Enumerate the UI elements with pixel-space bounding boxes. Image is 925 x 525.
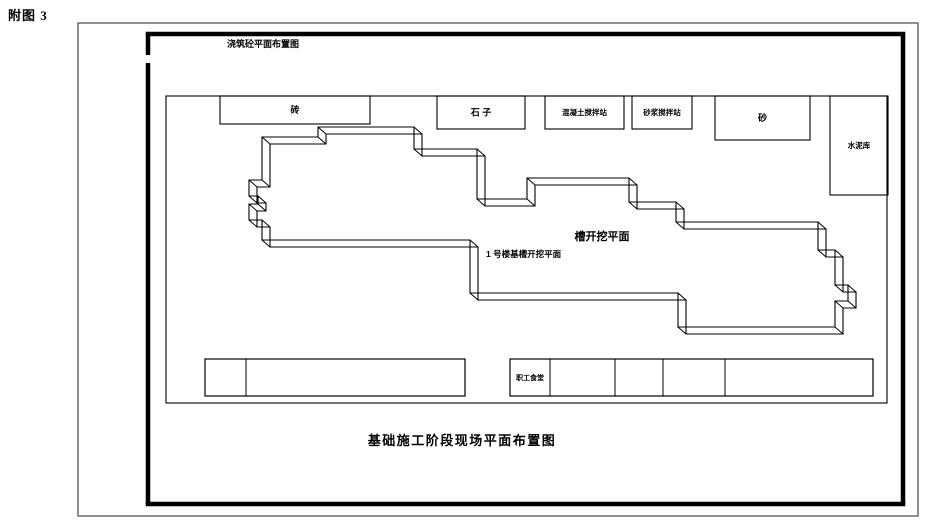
excavation-corner-tie [414,127,422,134]
bottom-shed-right-rect [510,359,873,396]
excavation-corner-tie [258,196,266,203]
excavation-corner-tie [835,301,843,308]
storage-box-label: 砖 [290,104,299,115]
excavation-corner-tie [262,137,270,144]
storage-box-label: 水泥库 [848,140,871,150]
excavation-corner-tie [249,196,257,203]
excavation-corner-tie [477,199,485,206]
construction-site-plan-page: 附图 3 浇筑砼平面布置图基础施工阶段现场平面布置图砖石 子混凝土搅拌站砂浆搅拌… [0,0,925,525]
excavation-corner-tie [262,220,270,227]
storage-box-label: 砂 [758,112,767,123]
storage-box-label: 石 子 [470,108,492,118]
drawing-caption: 基础施工阶段现场平面布置图 [367,433,557,448]
excavation-corner-tie [527,199,535,206]
excavation-corner-tie [835,250,843,257]
excavation-corner-tie [249,204,257,211]
excavation-corner-tie [414,149,422,156]
excavation-corner-tie [629,202,637,209]
excavation-corner-tie [477,149,485,156]
canteen-label: 职工食堂 [516,373,544,382]
excavation-corner-tie [818,222,826,229]
excavation-corner-tie [835,327,843,334]
top-area-label: 浇筑砼平面布置图 [227,38,299,49]
excavation-corner-tie [318,137,326,144]
excavation-corner-tie [470,293,478,300]
excavation-corner-tie [835,285,843,292]
excavation-corner-tie [470,240,478,247]
excavation-corner-tie [848,285,856,292]
excavation-corner-tie [527,178,535,185]
excavation-corner-tie [678,293,686,300]
storage-box-label: 砂浆搅拌站 [643,107,681,117]
excavation-corner-tie [848,301,856,308]
excavation-corner-tie [676,202,684,209]
excavation-label-main: 槽开挖平面 [575,229,630,243]
excavation-corner-tie [258,204,266,211]
excavation-corner-tie [318,127,326,134]
excavation-corner-tie [818,250,826,257]
excavation-corner-tie [678,327,686,334]
excavation-corner-tie [629,178,637,185]
excavation-corner-tie [249,220,257,227]
excavation-corner-tie [262,240,270,247]
storage-box-label: 混凝土搅拌站 [562,107,607,117]
excavation-outline-far [257,134,856,334]
excavation-corner-tie [262,180,270,187]
excavation-label-sub: 1 号楼基槽开挖平面 [486,249,562,259]
excavation-corner-tie [249,180,257,187]
site-plan-drawing: 浇筑砼平面布置图基础施工阶段现场平面布置图砖石 子混凝土搅拌站砂浆搅拌站砂水泥库… [0,0,925,525]
excavation-outline-near [249,127,848,327]
bottom-shed-left-rect [205,359,465,396]
excavation-corner-tie [676,222,684,229]
